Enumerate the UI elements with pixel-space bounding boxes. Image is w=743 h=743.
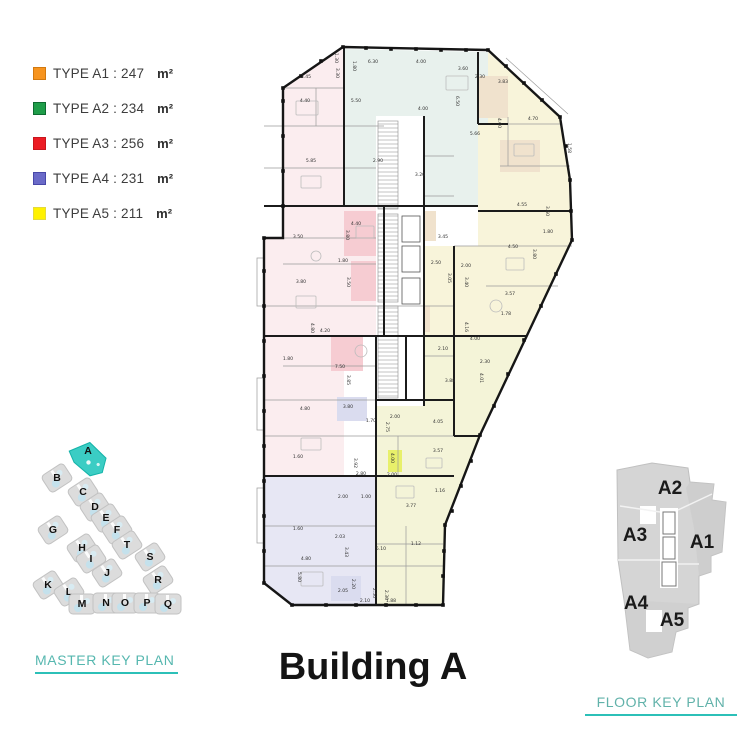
column-marker — [262, 339, 266, 343]
dimension-label: 1.00 — [361, 494, 371, 500]
legend-row: TYPE A4 : 231m² — [33, 171, 173, 185]
column-marker — [262, 514, 266, 518]
column-marker — [486, 48, 490, 52]
dimension-label: 3.05 — [446, 273, 452, 283]
column-marker — [558, 115, 562, 119]
type-label: TYPE A5 : 211 — [53, 206, 143, 221]
dimension-label: 4.00 — [496, 118, 502, 128]
key-plan-letter: T — [124, 539, 131, 551]
column-marker — [262, 479, 266, 483]
key-plan-letter: A — [84, 445, 92, 457]
dimension-label: 6.50 — [454, 96, 460, 106]
area-unit: m² — [157, 101, 173, 116]
dimension-label: 4.40 — [300, 98, 310, 104]
key-plan-letter: Q — [164, 598, 172, 610]
column-marker — [262, 409, 266, 413]
dimension-label: 4.20 — [320, 328, 330, 334]
dimension-label: 1.12 — [411, 541, 421, 547]
column-marker — [568, 178, 572, 182]
dimension-label: 3.45 — [301, 74, 311, 80]
dimension-label: 3.85 — [345, 375, 351, 385]
dimension-label: 3.43 — [343, 547, 349, 557]
dimension-label: 3.40 — [463, 277, 469, 287]
area-unit: m² — [157, 66, 173, 81]
type-label: TYPE A1 : 247 — [53, 66, 144, 81]
dimension-label: 1.30 — [333, 53, 339, 63]
dimension-label: 3.57 — [433, 448, 443, 454]
dimension-label: 3.77 — [406, 503, 416, 509]
type-color-swatch — [33, 172, 46, 185]
type-label: TYPE A3 : 256 — [53, 136, 144, 151]
master-key-plan: ABCDEFGHIJTSRKLMNOPQ — [30, 432, 190, 644]
floor-key-unit-label: A3 — [623, 525, 647, 546]
page-title: Building A — [258, 646, 488, 689]
dimension-label: 2.50 — [371, 588, 377, 598]
dimension-label: 2.05 — [338, 588, 348, 594]
dimension-label: 1.80 — [543, 229, 553, 235]
area-unit: m² — [157, 171, 173, 186]
dimension-label: 2.00 — [338, 494, 348, 500]
column-marker — [319, 59, 323, 63]
dimension-label: 3.92 — [352, 458, 358, 468]
dimension-label: 5.80 — [296, 572, 302, 582]
dimension-label: 3.83 — [498, 79, 508, 85]
dimension-label: 4.05 — [433, 419, 443, 425]
column-marker — [281, 86, 285, 90]
dimension-label: 2.90 — [373, 158, 383, 164]
key-plan-letter: R — [154, 574, 162, 586]
column-marker — [414, 603, 418, 607]
column-marker — [262, 304, 266, 308]
key-plan-letter: O — [121, 597, 129, 609]
dimension-label: 5.66 — [470, 131, 480, 137]
dimension-label: 6.30 — [368, 59, 378, 65]
dimension-label: 3.57 — [505, 291, 515, 297]
column-marker — [354, 603, 358, 607]
dimension-label: 2.00 — [461, 263, 471, 269]
dimension-label: 1.78 — [501, 311, 511, 317]
elevators — [402, 216, 420, 304]
dimension-label: 1.80 — [338, 258, 348, 264]
dimension-label: 3.20 — [415, 172, 425, 178]
column-marker — [443, 523, 447, 527]
dimension-label: 4.80 — [301, 556, 311, 562]
dimension-label: 2.50 — [431, 260, 441, 266]
dimension-label: 3.80 — [296, 279, 306, 285]
column-marker — [262, 549, 266, 553]
column-marker — [492, 404, 496, 408]
floor-key-unit-label: A4 — [624, 593, 649, 614]
column-marker — [389, 47, 393, 51]
column-marker — [262, 374, 266, 378]
dimension-label: 2.30 — [475, 74, 485, 80]
dimension-label: 2.10 — [438, 346, 448, 352]
dimension-label: 3.50 — [293, 234, 303, 240]
column-marker — [478, 433, 482, 437]
key-plan-letter: J — [104, 567, 110, 579]
page: TYPE A1 : 247m²TYPE A2 : 234m²TYPE A3 : … — [0, 0, 743, 743]
column-marker — [459, 484, 463, 488]
key-plan-letter: I — [90, 553, 93, 565]
column-marker — [281, 204, 285, 208]
dimension-label: 2.20 — [350, 579, 356, 589]
dimension-label: 4.00 — [389, 453, 395, 463]
type-label: TYPE A4 : 231 — [53, 171, 144, 186]
column-marker — [341, 45, 345, 49]
dimension-label: 2.00 — [390, 414, 400, 420]
dimension-label: 2.00 — [387, 472, 397, 478]
dimension-label: 2.30 — [480, 359, 490, 365]
dimension-label: 5.85 — [306, 158, 316, 164]
column-marker — [554, 272, 558, 276]
key-plan-letter: E — [102, 512, 109, 524]
dimension-label: 4.70 — [528, 116, 538, 122]
key-plan-letter: N — [102, 597, 110, 609]
dimension-label: 4.80 — [300, 406, 310, 412]
column-marker — [539, 304, 543, 308]
column-marker — [262, 444, 266, 448]
dimension-label: 4.00 — [418, 106, 428, 112]
floor-key-core — [662, 512, 676, 586]
column-marker — [364, 46, 368, 50]
column-marker — [262, 269, 266, 273]
column-marker — [262, 236, 266, 240]
column-marker — [469, 459, 473, 463]
column-marker — [450, 509, 454, 513]
column-marker — [324, 603, 328, 607]
dimension-label: 2.30 — [383, 590, 389, 600]
dimension-label: 1.70 — [366, 418, 376, 424]
legend-row: TYPE A1 : 247m² — [33, 66, 173, 80]
floor-key-plan-heading: FLOOR KEY PLAN — [585, 694, 737, 716]
dimension-label: 1.80 — [351, 61, 357, 71]
dimension-label: 2.75 — [384, 422, 390, 432]
dimension-label: 7.50 — [335, 364, 345, 370]
column-marker — [506, 372, 510, 376]
type-label: TYPE A2 : 234 — [53, 101, 144, 116]
type-color-swatch — [33, 207, 46, 220]
floor-key-plan: A2A3A1A4A5 — [598, 448, 738, 678]
column-marker — [439, 48, 443, 52]
dimension-label: 4.50 — [508, 244, 518, 250]
dimension-label: 1.80 — [283, 356, 293, 362]
dimension-label: 1.16 — [435, 488, 445, 494]
dimension-label: 2.03 — [335, 534, 345, 540]
key-plan-letter: F — [114, 524, 121, 536]
dimension-label: 3.60 — [544, 206, 550, 216]
column-marker — [504, 64, 508, 68]
column-marker — [414, 47, 418, 51]
dimension-label: 4.01 — [478, 373, 484, 383]
column-marker — [570, 238, 574, 242]
column-marker — [262, 581, 266, 585]
dimension-label: 3.45 — [438, 234, 448, 240]
dimension-label: 3.80 — [531, 249, 537, 259]
dimension-label: 3.30 — [334, 68, 340, 78]
column-marker — [540, 98, 544, 102]
dimension-label: 3.60 — [458, 66, 468, 72]
legend-row: TYPE A3 : 256m² — [33, 136, 173, 150]
dimension-label: 1.58 — [566, 143, 572, 153]
dimension-label: 2.10 — [360, 598, 370, 604]
key-plan-letter: G — [49, 524, 57, 536]
dimension-label: 5.50 — [351, 98, 361, 104]
dimension-label: 4.00 — [470, 336, 480, 342]
dimension-label: 4.40 — [351, 221, 361, 227]
dimension-label: 3.50 — [345, 277, 351, 287]
key-plan-building-A — [68, 436, 112, 482]
floor-key-unit-label: A1 — [690, 532, 715, 553]
key-plan-letter: S — [146, 551, 153, 563]
legend-row: TYPE A5 : 211m² — [33, 206, 173, 220]
column-marker — [441, 603, 445, 607]
floor-plan-drawing: 1.303.306.301.804.003.603.832.303.454.40… — [256, 6, 594, 618]
column-marker — [522, 81, 526, 85]
type-color-swatch — [33, 102, 46, 115]
dimension-label: 1.60 — [293, 526, 303, 532]
column-marker — [569, 209, 573, 213]
master-key-plan-heading: MASTER KEY PLAN — [35, 652, 178, 674]
key-plan-letter: C — [79, 486, 87, 498]
dimension-label: 4.80 — [309, 323, 315, 333]
dimension-label: 4.55 — [517, 202, 527, 208]
key-plan-letter: M — [78, 598, 87, 610]
dimension-label: 3.88 — [445, 378, 455, 384]
dimension-label: 4.00 — [416, 59, 426, 65]
legend-row: TYPE A2 : 234m² — [33, 101, 173, 115]
floor-key-unit-label: A5 — [660, 610, 685, 631]
type-color-swatch — [33, 137, 46, 150]
column-marker — [281, 134, 285, 138]
column-marker — [441, 574, 445, 578]
dimension-label: 5.10 — [376, 546, 386, 552]
dimension-label: 3.80 — [344, 230, 350, 240]
dimension-label: 3.80 — [343, 404, 353, 410]
key-plan-letter: K — [44, 579, 52, 591]
column-marker — [281, 169, 285, 173]
floor-key-unit-label: A2 — [658, 478, 682, 499]
key-plan-letter: B — [53, 472, 61, 484]
column-marker — [464, 48, 468, 52]
column-marker — [442, 549, 446, 553]
area-unit: m² — [156, 206, 172, 221]
type-color-swatch — [33, 67, 46, 80]
column-marker — [522, 338, 526, 342]
area-unit: m² — [157, 136, 173, 151]
type-legend: TYPE A1 : 247m²TYPE A2 : 234m²TYPE A3 : … — [33, 66, 173, 241]
dimension-label: 4.16 — [463, 322, 469, 332]
column-marker — [290, 603, 294, 607]
dimension-label: 2.80 — [356, 471, 366, 477]
key-plan-letter: P — [143, 597, 150, 609]
column-marker — [281, 99, 285, 103]
dimension-label: 1.60 — [293, 454, 303, 460]
